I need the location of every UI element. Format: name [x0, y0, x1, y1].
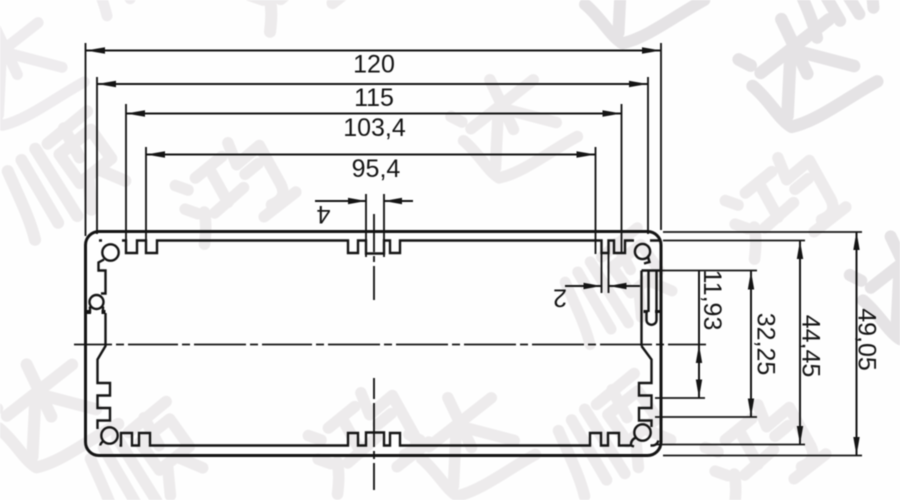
svg-text:115: 115 — [354, 84, 394, 112]
svg-text:120: 120 — [353, 51, 395, 79]
svg-text:32,25: 32,25 — [752, 313, 780, 376]
svg-text:95,4: 95,4 — [352, 155, 401, 183]
svg-text:103,4: 103,4 — [343, 114, 406, 142]
svg-text:49,05: 49,05 — [853, 308, 881, 371]
svg-text:4: 4 — [316, 200, 330, 228]
svg-text:44,45: 44,45 — [797, 315, 825, 378]
svg-text:2: 2 — [553, 284, 567, 312]
svg-text:11,93: 11,93 — [698, 270, 726, 331]
